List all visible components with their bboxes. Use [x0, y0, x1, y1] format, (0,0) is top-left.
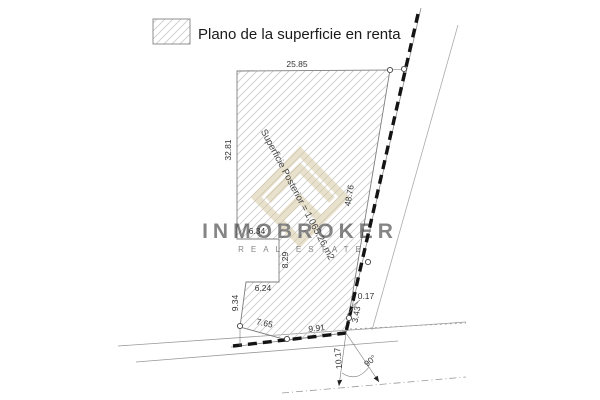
site-plan-svg: Plano de la superficie en renta INMOBROK… — [0, 0, 600, 400]
watermark-subtitle: REAL ESTATE — [238, 245, 368, 254]
dim-left: 32.81 — [223, 139, 233, 161]
measure-arrows — [337, 376, 379, 386]
dim-top: 25.85 — [286, 59, 308, 69]
legend-label: Plano de la superficie en renta — [198, 26, 401, 43]
dim-bottom-right: 9.91 — [308, 322, 326, 334]
dim-gap: 0.17 — [358, 291, 375, 301]
dim-step-right: 8.29 — [280, 251, 290, 268]
dim-step-mid: 6.24 — [255, 283, 272, 293]
legend-swatch-hatch — [153, 19, 190, 44]
arrow-down-icon — [374, 376, 379, 382]
dim-edge-small: 3.43 — [350, 305, 363, 323]
arrow-down-icon — [337, 380, 342, 386]
vertex-marker — [284, 336, 289, 341]
vertex-marker — [365, 259, 370, 264]
vertex-marker — [387, 67, 392, 72]
angle-arc — [342, 367, 369, 377]
dim-frontage-offset: 10.17 — [332, 347, 344, 369]
vertex-marker — [401, 66, 406, 71]
dim-step-left: 9.34 — [230, 294, 240, 311]
dim-step-top: 6.34 — [249, 226, 266, 236]
street-centerline — [282, 377, 466, 393]
vertex-marker — [237, 323, 242, 328]
legend: Plano de la superficie en renta — [153, 19, 401, 44]
dim-angle: 90° — [362, 353, 378, 369]
site-plan-canvas: Plano de la superficie en renta INMOBROK… — [0, 0, 600, 400]
